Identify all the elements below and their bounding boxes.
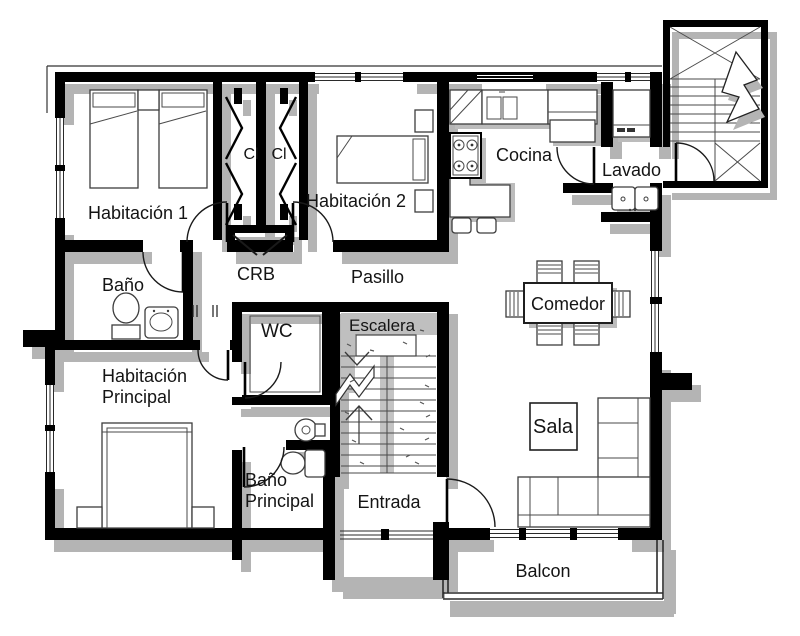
label-balcon: Balcon	[515, 561, 570, 581]
label-cocina: Cocina	[496, 145, 553, 165]
window-habitacion2	[310, 72, 408, 82]
stove-symbol	[450, 133, 481, 178]
label-closet-left: Cl	[243, 146, 258, 163]
bed-symbol-principal	[102, 423, 192, 528]
label-bano-principal-1: Baño	[245, 470, 287, 490]
floor-plan: Habitación 1 Cl Cl Habitación 2 Cocina L…	[0, 0, 800, 636]
label-habitacion1: Habitación 1	[88, 203, 188, 223]
toilet-symbol	[112, 293, 140, 339]
nightstand-symbol	[415, 110, 433, 132]
stool-symbol	[477, 218, 496, 233]
window-habitacion1	[55, 113, 65, 223]
label-comedor: Comedor	[531, 294, 605, 314]
label-wc: WC	[261, 321, 293, 342]
floor-plan-drawing: Habitación 1 Cl Cl Habitación 2 Cocina L…	[0, 0, 800, 636]
label-habitacion-principal-1: Habitación	[102, 366, 187, 386]
label-closet-right: Cl	[271, 146, 286, 163]
nightstand-symbol	[415, 190, 433, 212]
laundry-sink-symbol	[612, 187, 658, 211]
nightstand-symbol	[192, 507, 214, 528]
label-lavado: Lavado	[602, 160, 661, 180]
label-habitacion-principal-2: Principal	[102, 387, 171, 407]
washer-symbol	[613, 90, 650, 137]
window-habitacion-principal	[45, 380, 55, 477]
nightstand-symbol	[77, 507, 102, 528]
bed-symbol-2	[159, 90, 207, 188]
label-pasillo: Pasillo	[351, 267, 404, 287]
label-bano: Baño	[102, 275, 144, 295]
stool-symbol	[452, 218, 471, 233]
label-habitacion2: Habitación 2	[306, 191, 406, 211]
sink-symbol	[145, 307, 178, 338]
label-crb: CRB	[237, 264, 275, 284]
label-sala: Sala	[533, 416, 574, 438]
label-escalera: Escalera	[349, 316, 416, 335]
label-bano-principal-2: Principal	[245, 491, 314, 511]
bed-symbol-1	[90, 90, 138, 188]
window-cocina	[473, 72, 537, 82]
label-entrada: Entrada	[357, 492, 421, 512]
bed-symbol-3	[337, 136, 428, 183]
nightstand-symbol	[138, 90, 159, 110]
